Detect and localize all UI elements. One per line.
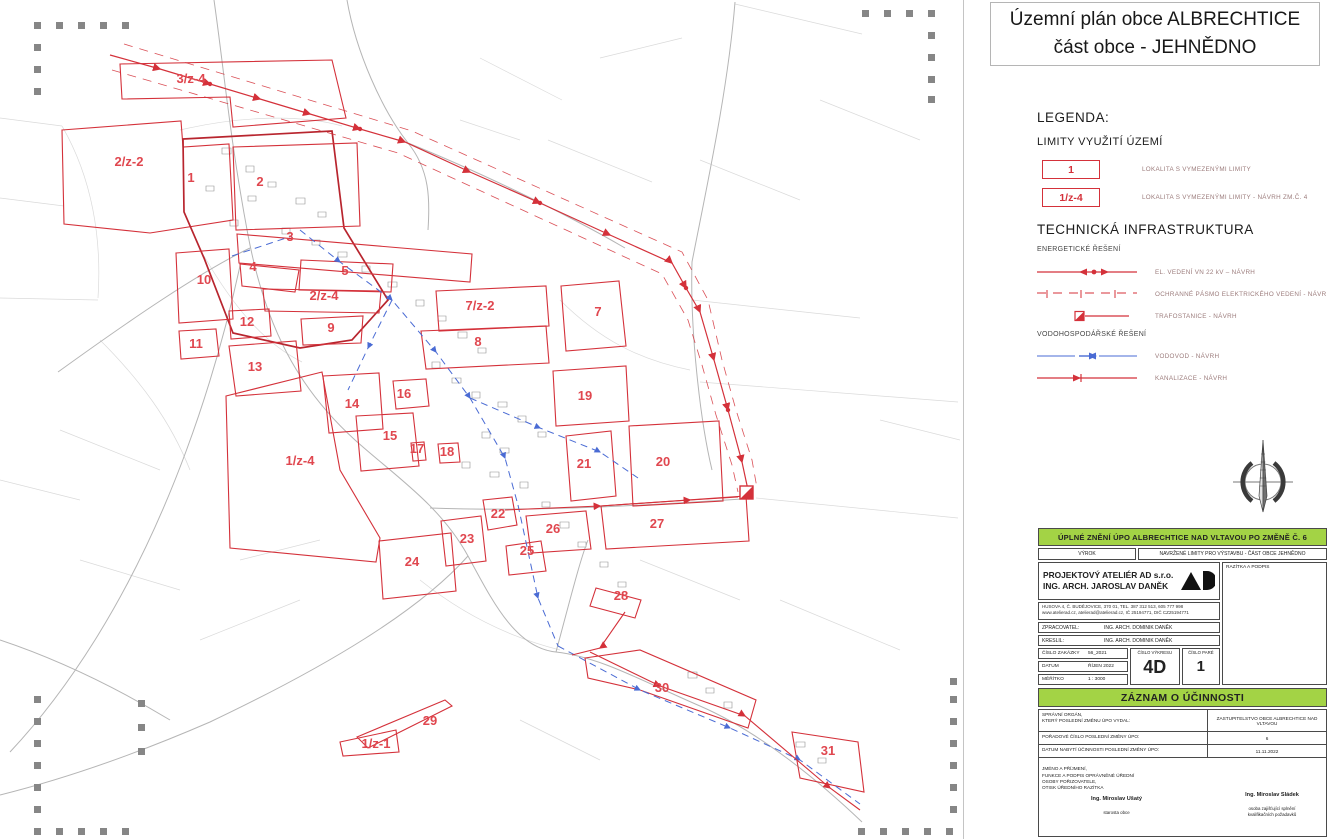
zone-label-9: 9 bbox=[327, 320, 334, 335]
zone-label-7/z-2: 7/z-2 bbox=[466, 298, 495, 313]
legend-row-trafostanice: TRAFOSTANICE - NÁVRH bbox=[1037, 310, 1237, 322]
zaznam-table: SPRÁVNÍ ORGÁN, KTERÝ POSLEDNÍ ZMĚNU ÚPO … bbox=[1038, 709, 1327, 837]
zone-label-24: 24 bbox=[405, 554, 420, 569]
studio-architect: ING. ARCH. JAROSLAV DANĚK bbox=[1043, 581, 1173, 592]
kanalizace-swatch bbox=[1037, 372, 1137, 384]
zone-label-5: 5 bbox=[341, 263, 348, 278]
legend-heading: LEGENDA: bbox=[1037, 110, 1109, 125]
stamp-cell: RAZÍTKA A PODPIS bbox=[1222, 562, 1327, 685]
title-line2: část obce - JEHNĚDNO bbox=[1054, 34, 1257, 62]
zone-label-11: 11 bbox=[189, 336, 203, 351]
zone-label-7: 7 bbox=[594, 304, 601, 319]
zone-outlines bbox=[62, 60, 864, 792]
el-vedeni-swatch bbox=[1037, 266, 1137, 278]
kreslil-value: ING. ARCH. DOMINIK DANĚK bbox=[1104, 638, 1172, 644]
zaznam-organ-label: SPRÁVNÍ ORGÁN, KTERÝ POSLEDNÍ ZMĚNU ÚPO … bbox=[1039, 710, 1208, 731]
vyrok-label: VÝROK bbox=[1038, 548, 1136, 560]
zone-label-8: 8 bbox=[474, 334, 481, 349]
zpracovatel-label: ZPRACOVATEL: bbox=[1042, 625, 1104, 631]
cislo-pare-value: 1 bbox=[1183, 655, 1219, 679]
stamp-label: RAZÍTKA A PODPIS bbox=[1226, 565, 1269, 570]
limit-box-label: LOKALITA S VYMEZENÝMI LIMITY bbox=[1142, 166, 1251, 173]
zaznam-organ-value: ZASTUPITELSTVO OBCE ALBRECHTICE NAD VLTA… bbox=[1208, 710, 1326, 731]
corner-marks bbox=[34, 10, 957, 835]
datum-row: DATUM ŘÍJEN 2022 bbox=[1038, 661, 1128, 672]
zpracovatel-row: ZPRACOVATEL: ING. ARCH. DOMINIK DANĚK bbox=[1038, 622, 1220, 633]
signature-poridzovatel-name: Ing. Miroslav Sládek bbox=[1224, 792, 1320, 800]
zone-label-10: 10 bbox=[197, 272, 211, 287]
zpracovatel-value: ING. ARCH. DOMINIK DANĚK bbox=[1104, 625, 1172, 631]
zone-label-2/z-4: 2/z-4 bbox=[310, 288, 340, 303]
zone-label-18: 18 bbox=[440, 444, 454, 459]
zone-label-17: 17 bbox=[410, 441, 424, 456]
zone-outline-2 bbox=[233, 143, 360, 230]
signature-poridzovatel: Ing. Miroslav Sládek osoba zajišťující s… bbox=[1224, 786, 1320, 824]
corner-marks-top-left bbox=[34, 22, 129, 95]
zone-outline-3 bbox=[237, 234, 472, 282]
zone-label-14: 14 bbox=[345, 396, 360, 411]
zone-label-1/z-1: 1/z-1 bbox=[362, 736, 391, 751]
zaznam-row-poradove: POŘADOVÉ ČÍSLO POSLEDNÍ ZMĚNY ÚPO: 6 bbox=[1039, 732, 1326, 745]
address-line2: www.atelierad.cz, atelierad@atelierad.cz… bbox=[1042, 610, 1216, 616]
zone-label-29: 29 bbox=[423, 713, 437, 728]
zone-outline-31 bbox=[792, 732, 864, 792]
compass-rose bbox=[1223, 438, 1303, 520]
limit-navrh-box-symbol: 1/z-4 bbox=[1042, 188, 1100, 207]
titleblock-header: ÚPLNÉ ZNĚNÍ ÚPO ALBRECHTICE NAD VLTAVOU … bbox=[1038, 528, 1327, 546]
zone-label-19: 19 bbox=[578, 388, 592, 403]
datum-value: ŘÍJEN 2022 bbox=[1088, 664, 1114, 669]
meritko-value: 1 : 3000 bbox=[1088, 677, 1105, 682]
zone-outline-13 bbox=[229, 341, 301, 396]
signature-starosta-role: starosta obce bbox=[1091, 810, 1142, 816]
limit-navrh-box-label: LOKALITA S VYMEZENÝMI LIMITY - NÁVRH ZM.… bbox=[1142, 194, 1308, 201]
water-lines bbox=[232, 230, 860, 804]
meritko-label: MĚŘÍTKO bbox=[1042, 677, 1088, 682]
studio-cell: PROJEKTOVÝ ATELIÉR AD s.r.o. ING. ARCH. … bbox=[1038, 562, 1220, 600]
zone-label-2/z-2: 2/z-2 bbox=[115, 154, 144, 169]
trafostanice-symbol bbox=[740, 486, 753, 499]
zone-label-25: 25 bbox=[520, 543, 534, 558]
info-panel: Územní plán obce ALBRECHTICE část obce -… bbox=[985, 0, 1327, 839]
zone-label-31: 31 bbox=[821, 743, 835, 758]
panel-divider bbox=[963, 0, 964, 839]
limit-box-symbol: 1 bbox=[1042, 160, 1100, 179]
zone-label-1: 1 bbox=[187, 170, 194, 185]
title-line1: Územní plán obce ALBRECHTICE bbox=[1010, 6, 1300, 34]
zaznam-datum-label: DATUM NABYTÍ ÚČINNOSTI POSLEDNÍ ZMĚNY ÚP… bbox=[1039, 745, 1208, 757]
title-block: ÚPLNÉ ZNĚNÍ ÚPO ALBRECHTICE NAD VLTAVOU … bbox=[1038, 528, 1327, 837]
ochranne-pasmo-label: OCHRANNÉ PÁSMO ELEKTRICKÉHO VEDENÍ - NÁV… bbox=[1155, 291, 1327, 298]
studio-name: PROJEKTOVÝ ATELIÉR AD s.r.o. bbox=[1043, 570, 1173, 581]
cislo-vykresu-value: 4D bbox=[1131, 655, 1179, 680]
cislo-pare-cell: ČÍSLO PARÉ 1 bbox=[1182, 648, 1220, 685]
zone-outline-20 bbox=[629, 421, 723, 506]
signature-starosta-name: Ing. Miroslav Ušatý bbox=[1091, 796, 1142, 804]
legend-row-el-vedeni: EL. VEDENÍ VN 22 kV – NÁVRH bbox=[1037, 266, 1255, 278]
zaznam-poradove-value: 6 bbox=[1208, 732, 1326, 744]
studio-address: HUSOVA 4, Č. BUDĚJOVICE, 370 01, TEL. 38… bbox=[1038, 602, 1220, 620]
datum-label: DATUM bbox=[1042, 664, 1088, 669]
zaznam-datum-value: 11.11.2022 bbox=[1208, 745, 1326, 757]
vyrok-value: NAVRŽENÉ LIMITY PRO VÝSTAVBU - ČÁST OBCE… bbox=[1138, 548, 1327, 560]
ad-logo-icon bbox=[1179, 568, 1215, 594]
zone-label-28: 28 bbox=[614, 588, 628, 603]
zone-label-26: 26 bbox=[546, 521, 560, 536]
signature-starosta: Ing. Miroslav Ušatý starosta obce bbox=[1091, 790, 1142, 822]
zaznam-row-organ: SPRÁVNÍ ORGÁN, KTERÝ POSLEDNÍ ZMĚNU ÚPO … bbox=[1039, 710, 1326, 732]
legend-row-vodovod: VODOVOD - NÁVRH bbox=[1037, 350, 1219, 362]
limits-heading: LIMITY VYUŽITÍ ÚZEMÍ bbox=[1037, 136, 1163, 148]
zakazka-row: ČÍSLO ZAKÁZKY 56_2021 bbox=[1038, 648, 1128, 659]
cislo-vykresu-cell: ČÍSLO VÝKRESU 4D bbox=[1130, 648, 1180, 685]
corner-marks-top-right bbox=[862, 10, 935, 103]
plan-map: 3/z-42/z-212345102/z-47/z-27129811131614… bbox=[0, 0, 965, 839]
legend-item-limit-navrh: 1/z-4 LOKALITA S VYMEZENÝMI LIMITY - NÁV… bbox=[1042, 188, 1308, 207]
legend-row-ochranne-pasmo: OCHRANNÉ PÁSMO ELEKTRICKÉHO VEDENÍ - NÁV… bbox=[1037, 288, 1327, 300]
zaznam-header: ZÁZNAM O ÚČINNOSTI bbox=[1038, 688, 1327, 707]
zaznam-poradove-label: POŘADOVÉ ČÍSLO POSLEDNÍ ZMĚNY ÚPO: bbox=[1039, 732, 1208, 744]
zone-outline-3z-4 bbox=[120, 60, 346, 127]
zaznam-note: JMÉNO A PŘÍJMENÍ, FUNKCE A PODPIS OPRÁVN… bbox=[1042, 766, 1134, 790]
vodovod-swatch bbox=[1037, 350, 1137, 362]
roads bbox=[0, 0, 862, 822]
trafostanice-swatch bbox=[1037, 310, 1137, 322]
ochranne-pasmo-swatch bbox=[1037, 288, 1137, 300]
zone-label-2: 2 bbox=[256, 174, 263, 189]
zakazka-label: ČÍSLO ZAKÁZKY bbox=[1042, 651, 1088, 656]
zone-label-1/z-4: 1/z-4 bbox=[286, 453, 316, 468]
zone-label-16: 16 bbox=[397, 386, 411, 401]
titleblock-row-vyrok: VÝROK NAVRŽENÉ LIMITY PRO VÝSTAVBU - ČÁS… bbox=[1038, 548, 1327, 560]
zone-label-22: 22 bbox=[491, 506, 505, 521]
zone-label-12: 12 bbox=[240, 314, 254, 329]
trafostanice-label: TRAFOSTANICE - NÁVRH bbox=[1155, 313, 1237, 320]
signature-poridzovatel-role: osoba zajišťující splnění kvalifikačních… bbox=[1224, 806, 1320, 817]
el-vedeni-label: EL. VEDENÍ VN 22 kV – NÁVRH bbox=[1155, 269, 1255, 276]
infra-heading: TECHNICKÁ INFRASTRUKTURA bbox=[1037, 222, 1254, 237]
zone-label-3: 3 bbox=[286, 229, 293, 244]
zone-label-23: 23 bbox=[460, 531, 474, 546]
plan-sheet: 3/z-42/z-212345102/z-47/z-27129811131614… bbox=[0, 0, 1327, 839]
vodovod-label: VODOVOD - NÁVRH bbox=[1155, 353, 1219, 360]
zaznam-note-cell: JMÉNO A PŘÍJMENÍ, FUNKCE A PODPIS OPRÁVN… bbox=[1039, 758, 1326, 836]
zone-label-13: 13 bbox=[248, 359, 262, 374]
zone-label-30: 30 bbox=[655, 680, 669, 695]
energy-heading: ENERGETICKÉ ŘEŠENÍ bbox=[1037, 246, 1121, 253]
legend-row-kanalizace: KANALIZACE - NÁVRH bbox=[1037, 372, 1227, 384]
zone-label-3/z-4: 3/z-4 bbox=[177, 71, 207, 86]
zone-label-21: 21 bbox=[577, 456, 591, 471]
zaznam-row-datum: DATUM NABYTÍ ÚČINNOSTI POSLEDNÍ ZMĚNY ÚP… bbox=[1039, 745, 1326, 758]
meritko-row: MĚŘÍTKO 1 : 3000 bbox=[1038, 674, 1128, 685]
zone-label-27: 27 bbox=[650, 516, 664, 531]
map-title: Územní plán obce ALBRECHTICE část obce -… bbox=[990, 2, 1320, 66]
zone-label-4: 4 bbox=[249, 259, 257, 274]
zone-label-15: 15 bbox=[383, 428, 397, 443]
corner-marks-bottom-right bbox=[858, 678, 957, 835]
sewer-lines bbox=[505, 497, 860, 810]
parcel-lines bbox=[0, 4, 960, 760]
power-line-dots bbox=[208, 82, 730, 412]
kanalizace-label: KANALIZACE - NÁVRH bbox=[1155, 375, 1227, 382]
zakazka-value: 56_2021 bbox=[1088, 651, 1107, 656]
legend-item-limit: 1 LOKALITA S VYMEZENÝMI LIMITY bbox=[1042, 160, 1251, 179]
corner-marks-bottom-left bbox=[34, 696, 145, 835]
kreslil-label: KRESLIL: bbox=[1042, 638, 1104, 644]
water-heading: VODOHOSPODÁŘSKÉ ŘEŠENÍ bbox=[1037, 331, 1146, 338]
zone-label-20: 20 bbox=[656, 454, 670, 469]
kreslil-row: KRESLIL: ING. ARCH. DOMINIK DANĚK bbox=[1038, 635, 1220, 646]
